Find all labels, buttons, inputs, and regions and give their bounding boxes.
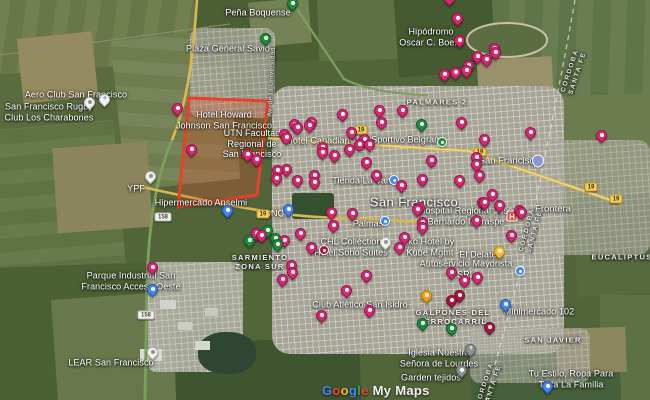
pin-hole: [299, 231, 303, 235]
pin-hole: [151, 265, 155, 269]
pin-hole: [287, 207, 291, 211]
map-pin-pink[interactable]: [329, 149, 341, 163]
city-marker-icon[interactable]: [532, 155, 544, 168]
map-pin-pink[interactable]: [347, 207, 359, 221]
map-pin-pink[interactable]: [472, 271, 484, 285]
map-pin-pink[interactable]: [397, 104, 409, 118]
map-pin-pink[interactable]: [361, 269, 373, 283]
pin-hole: [176, 106, 180, 110]
pin-hole: [375, 173, 379, 177]
pin-hole: [510, 233, 514, 237]
map-pin-pink[interactable]: [317, 146, 329, 160]
google-my-maps-watermark: Google My Maps: [322, 383, 430, 398]
pin-hole: [421, 225, 425, 229]
pin-hole: [475, 218, 479, 222]
map-poi-dot-blue[interactable]: [515, 266, 525, 276]
pin-hole: [341, 112, 345, 116]
pin-hole: [483, 200, 487, 204]
pin-hole: [485, 57, 489, 61]
pin-hole: [275, 176, 279, 180]
map-pin-pink[interactable]: [446, 266, 458, 280]
map-pin-pink[interactable]: [394, 241, 406, 255]
map-pin-pink[interactable]: [364, 138, 376, 152]
pin-hole: [351, 211, 355, 215]
map-pin-pink[interactable]: [328, 219, 340, 233]
pin-hole: [425, 293, 429, 297]
pin-hole: [398, 245, 402, 249]
map-pin-pink[interactable]: [471, 214, 483, 228]
map-pin-white[interactable]: ✈: [99, 93, 111, 107]
map-pin-pink[interactable]: [481, 53, 493, 67]
pin-hole: [296, 125, 300, 129]
pin-hole: [450, 298, 454, 302]
pin-hole: [491, 192, 495, 196]
map-pin-pink[interactable]: [596, 129, 608, 143]
pin-hole: [460, 368, 464, 372]
map-pin-yellow[interactable]: [494, 245, 506, 259]
pin-hole: [291, 1, 295, 5]
pin-hole: [310, 245, 314, 249]
pin-hole: [88, 100, 92, 104]
map-pin-pink[interactable]: [479, 133, 491, 147]
map-pin-pink[interactable]: [306, 241, 318, 255]
map-poi-dot-darkred[interactable]: [319, 245, 329, 255]
markers-layer: ✈H✝: [0, 0, 650, 400]
pin-hole: [151, 287, 155, 291]
map-pin-darkred[interactable]: [484, 321, 496, 335]
pin-hole: [401, 108, 405, 112]
pin-hole: [246, 152, 250, 156]
pin-hole: [421, 321, 425, 325]
pin-hole: [450, 326, 454, 330]
map-pin-pink[interactable]: [444, 0, 456, 6]
pin-hole: [321, 150, 325, 154]
map-pin-green[interactable]: [446, 322, 458, 336]
google-logo-letter: G: [322, 383, 332, 398]
map-pin-pink[interactable]: [479, 196, 491, 210]
map-pin-pink[interactable]: [376, 116, 388, 130]
pin-hole: [476, 54, 480, 58]
pin-hole: [483, 137, 487, 141]
pin-hole: [308, 123, 312, 127]
pin-hole: [365, 160, 369, 164]
pin-hole: [276, 242, 280, 246]
pin-hole: [416, 207, 420, 211]
map-pin-pink[interactable]: [461, 64, 473, 78]
pin-hole: [281, 277, 285, 281]
map-pin-pink[interactable]: [277, 273, 289, 287]
map-pin-pink[interactable]: [417, 173, 429, 187]
pin-hole: [498, 249, 502, 253]
pin-hole: [368, 308, 372, 312]
map-pin-green[interactable]: [417, 317, 429, 331]
pin-hole: [248, 238, 252, 242]
plane-icon: ✈: [99, 96, 111, 103]
map-pin-pink[interactable]: [454, 34, 466, 48]
pin-hole: [600, 133, 604, 137]
map-pin-white[interactable]: [147, 346, 159, 360]
map-pin-pink[interactable]: [396, 179, 408, 193]
pin-hole: [384, 240, 388, 244]
map-pin-pink[interactable]: [439, 68, 451, 82]
pin-hole: [478, 173, 482, 177]
pin-hole: [529, 130, 533, 134]
pin-hole: [460, 120, 464, 124]
pin-hole: [494, 50, 498, 54]
google-logo-letter: g: [349, 383, 357, 398]
map-pin-pink[interactable]: [474, 169, 486, 183]
church-icon: ✝: [465, 346, 477, 353]
pin-hole: [504, 302, 508, 306]
map-pin-pink[interactable]: [271, 172, 283, 186]
map-pin-pink[interactable]: [304, 119, 316, 133]
pin-hole: [264, 36, 268, 40]
pin-hole: [345, 288, 349, 292]
pin-hole: [420, 122, 424, 126]
pin-hole: [450, 270, 454, 274]
map-pin-pink[interactable]: [281, 131, 293, 145]
map-pin-pink[interactable]: [450, 66, 462, 80]
pin-hole: [520, 210, 524, 214]
map-pin-green[interactable]: [416, 118, 428, 132]
pin-hole: [365, 273, 369, 277]
map-pin-pink[interactable]: [295, 227, 307, 241]
map-pin-pink[interactable]: [341, 284, 353, 298]
google-logo: Google: [322, 383, 369, 398]
pin-hole: [190, 147, 194, 151]
pin-hole: [333, 153, 337, 157]
map-pin-orange[interactable]: [421, 289, 433, 303]
pin-hole: [368, 142, 372, 146]
map-pin-pink[interactable]: [371, 169, 383, 183]
pin-hole: [430, 158, 434, 162]
pin-hole: [226, 208, 230, 212]
map-pin-pink[interactable]: [344, 143, 356, 157]
pin-hole: [330, 210, 334, 214]
pin-hole: [458, 293, 462, 297]
map-canvas[interactable]: Peña BoquensePlaza General SavioHipódrom…: [0, 0, 650, 400]
pin-hole: [476, 275, 480, 279]
map-pin-pink[interactable]: [525, 126, 537, 140]
map-pin-pink[interactable]: [251, 153, 263, 167]
map-pin-pink[interactable]: [326, 206, 338, 220]
pin-hole: [255, 157, 259, 161]
pin-hole: [291, 270, 295, 274]
map-pin-blue[interactable]: [222, 204, 234, 218]
pin-hole: [546, 384, 550, 388]
map-pin-pink[interactable]: [426, 154, 438, 168]
map-pin-green[interactable]: [272, 238, 284, 252]
google-logo-letter: o: [332, 383, 340, 398]
map-pin-white[interactable]: [380, 236, 392, 250]
map-pin-pink[interactable]: [147, 261, 159, 275]
map-pin-pink[interactable]: [172, 102, 184, 116]
map-pin-pink[interactable]: [186, 143, 198, 157]
map-pin-pink[interactable]: [364, 304, 376, 318]
map-pin-pink[interactable]: [309, 176, 321, 190]
pin-hole: [149, 174, 153, 178]
map-pin-blue[interactable]: [500, 298, 512, 312]
google-logo-letter: o: [341, 383, 349, 398]
map-pin-pink[interactable]: [506, 229, 518, 243]
map-pin-pink[interactable]: [417, 221, 429, 235]
pin-hole: [458, 38, 462, 42]
map-pin-pink[interactable]: [292, 121, 304, 135]
pin-hole: [421, 177, 425, 181]
map-poi-dot-green[interactable]: [437, 137, 447, 147]
map-pin-green[interactable]: [244, 234, 256, 248]
pin-hole: [313, 180, 317, 184]
pin-hole: [458, 178, 462, 182]
pin-hole: [400, 183, 404, 187]
map-pin-pink[interactable]: [412, 203, 424, 217]
pin-hole: [320, 313, 324, 317]
pin-hole: [443, 72, 447, 76]
map-pin-white[interactable]: [84, 96, 96, 110]
map-pin-gray[interactable]: [456, 364, 468, 378]
map-pin-darkred[interactable]: [446, 294, 458, 308]
pin-hole: [454, 70, 458, 74]
pin-hole: [456, 16, 460, 20]
pin-hole: [332, 223, 336, 227]
pin-hole: [463, 278, 467, 282]
map-pin-white[interactable]: [145, 170, 157, 184]
map-pin-green[interactable]: [260, 32, 272, 46]
map-poi-dot-blue[interactable]: [380, 216, 390, 226]
map-pin-pink[interactable]: [292, 174, 304, 188]
map-pin-pink[interactable]: [456, 116, 468, 130]
pin-hole: [475, 162, 479, 166]
map-pin-pink[interactable]: [316, 309, 328, 323]
map-pin-gray[interactable]: ✝: [465, 343, 477, 357]
pin-shape: [442, 0, 458, 6]
map-pin-pink[interactable]: [454, 174, 466, 188]
pin-hole: [285, 135, 289, 139]
map-pin-pink[interactable]: [494, 199, 506, 213]
map-pin-blue[interactable]: [542, 380, 554, 394]
pin-hole: [151, 350, 155, 354]
map-pin-blue[interactable]: [283, 203, 295, 217]
pin-hole: [465, 68, 469, 72]
map-pin-pink[interactable]: [256, 229, 268, 243]
pin-hole: [488, 325, 492, 329]
map-pin-pink[interactable]: [337, 108, 349, 122]
pin-hole: [350, 130, 354, 134]
map-pin-green[interactable]: [287, 0, 299, 11]
pin-hole: [380, 120, 384, 124]
pin-hole: [260, 233, 264, 237]
pin-hole: [378, 108, 382, 112]
google-logo-letter: e: [361, 383, 369, 398]
map-pin-pink[interactable]: [361, 156, 373, 170]
my-maps-label: My Maps: [373, 383, 430, 398]
map-pin-pink[interactable]: [516, 206, 528, 220]
pin-hole: [348, 147, 352, 151]
pin-hole: [285, 167, 289, 171]
pin-hole: [296, 178, 300, 182]
pin-hole: [498, 203, 502, 207]
map-pin-blue[interactable]: [147, 283, 159, 297]
map-pin-pink[interactable]: [459, 274, 471, 288]
map-pin-pink[interactable]: [452, 12, 464, 26]
pin-hole: [358, 142, 362, 146]
pin-hole: [403, 235, 407, 239]
